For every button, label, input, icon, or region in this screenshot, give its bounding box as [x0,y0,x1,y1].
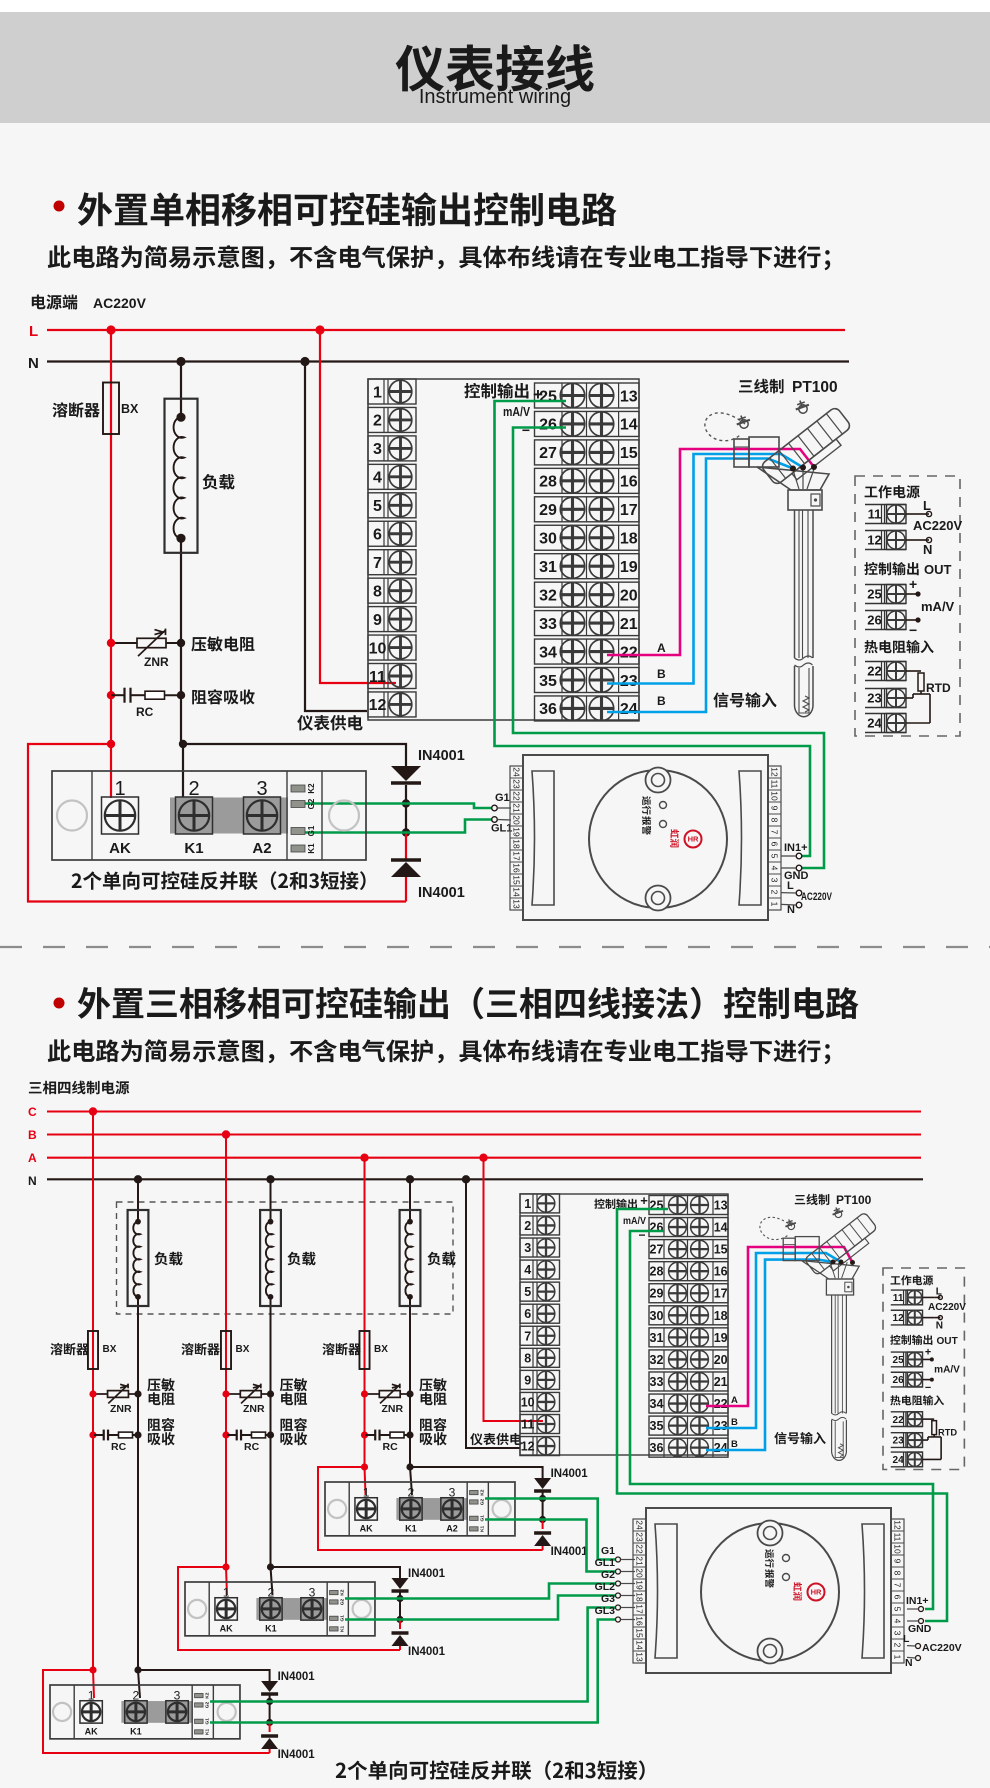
svg-text:9: 9 [373,612,382,629]
svg-text:IN4001: IN4001 [278,1671,316,1683]
svg-text:16: 16 [635,1616,645,1626]
svg-text:G2: G2 [480,1498,486,1505]
svg-text:+: + [909,576,917,592]
svg-text:3: 3 [309,1586,316,1600]
svg-text:29: 29 [539,502,557,519]
svg-text:32: 32 [539,587,557,604]
svg-text:mA/V: mA/V [623,1215,646,1227]
svg-text:14: 14 [714,1221,728,1235]
svg-text:4: 4 [770,866,780,871]
svg-text:14: 14 [635,1640,645,1650]
svg-text:HR: HR [811,1588,822,1597]
svg-text:7: 7 [524,1329,531,1343]
svg-text:13: 13 [635,1652,645,1662]
svg-text:B: B [731,1439,738,1450]
svg-text:18: 18 [714,1309,728,1323]
svg-text:22: 22 [620,644,638,661]
svg-text:OUT: OUT [936,1336,958,1347]
svg-text:L: L [936,1286,942,1297]
svg-text:3: 3 [256,778,267,800]
svg-text:A2: A2 [252,840,271,857]
svg-text:26: 26 [650,1221,664,1235]
svg-text:15: 15 [714,1243,728,1257]
svg-text:1: 1 [363,1486,370,1500]
svg-text:8: 8 [524,1351,531,1365]
svg-text:K2: K2 [340,1589,346,1595]
svg-text:12: 12 [893,1313,905,1324]
svg-text:11: 11 [369,669,386,686]
svg-text:4: 4 [373,470,382,487]
svg-text:33: 33 [539,616,557,633]
svg-text:26: 26 [893,1375,905,1386]
svg-text:2: 2 [373,413,382,430]
svg-text:BX: BX [103,1344,117,1355]
svg-text:36: 36 [650,1441,664,1455]
svg-text:K1: K1 [480,1525,486,1531]
svg-text:AC220V: AC220V [801,891,832,903]
svg-text:25: 25 [867,587,881,602]
svg-text:34: 34 [650,1397,664,1411]
svg-text:22: 22 [893,1415,905,1426]
svg-text:22: 22 [512,791,522,801]
svg-text:26: 26 [539,417,557,434]
svg-text:36: 36 [539,701,557,718]
svg-text:L: L [923,498,931,513]
svg-text:GL1: GL1 [491,823,512,835]
svg-text:27: 27 [539,445,557,462]
svg-text:3: 3 [893,1631,903,1636]
svg-text:22: 22 [867,664,881,679]
svg-text:12: 12 [867,533,881,548]
svg-text:−: − [909,622,917,638]
svg-text:22: 22 [635,1544,645,1554]
svg-text:mA/V: mA/V [934,1365,960,1376]
svg-text:1: 1 [524,1197,531,1211]
svg-text:24: 24 [620,701,638,718]
svg-text:ZNR: ZNR [382,1403,404,1415]
svg-text:3: 3 [449,1486,456,1500]
svg-text:K1: K1 [307,843,316,854]
svg-text:A2: A2 [446,1524,458,1534]
svg-text:24: 24 [867,716,882,731]
svg-text:19: 19 [620,559,638,576]
svg-text:17: 17 [512,851,522,861]
svg-text:23: 23 [714,1419,728,1433]
svg-text:2: 2 [408,1486,415,1500]
svg-text:L: L [787,880,794,892]
svg-text:G2: G2 [340,1598,346,1605]
svg-text:15: 15 [512,875,522,885]
svg-text:3: 3 [174,1689,181,1703]
svg-text:PT100: PT100 [792,379,838,396]
svg-text:K1: K1 [205,1728,211,1734]
svg-text:L: L [903,1633,910,1645]
svg-text:mA/V: mA/V [921,599,955,614]
svg-text:32: 32 [650,1353,664,1367]
svg-text:13: 13 [512,899,522,909]
svg-text:23: 23 [867,691,881,706]
svg-text:IN4001: IN4001 [551,1546,589,1558]
svg-text:K1: K1 [184,840,203,857]
svg-text:N: N [936,1320,943,1331]
svg-text:N: N [905,1657,913,1669]
svg-text:18: 18 [635,1592,645,1602]
svg-text:19: 19 [512,827,522,837]
svg-text:5: 5 [373,498,382,515]
svg-text:28: 28 [650,1265,664,1279]
svg-text:12: 12 [521,1440,535,1454]
svg-text:14: 14 [620,417,638,434]
svg-text:AK: AK [109,840,131,857]
svg-text:1: 1 [223,1586,230,1600]
svg-text:IN4001: IN4001 [278,1749,316,1761]
svg-text:35: 35 [650,1419,664,1433]
svg-text:B: B [731,1417,738,1428]
svg-text:23: 23 [893,1436,905,1447]
svg-text:25: 25 [650,1199,664,1213]
svg-text:G1: G1 [307,825,316,836]
svg-text:AK: AK [85,1727,99,1737]
svg-text:13: 13 [714,1199,728,1213]
svg-text:23: 23 [635,1532,645,1542]
svg-text:5: 5 [524,1285,531,1299]
svg-text:RC: RC [136,705,154,719]
svg-text:RTD: RTD [926,681,951,695]
svg-text:16: 16 [512,863,522,873]
svg-text:2: 2 [524,1219,531,1233]
svg-text:AC220V: AC220V [928,1302,966,1313]
svg-text:11: 11 [521,1418,534,1432]
svg-text:10: 10 [369,640,387,657]
svg-text:K1: K1 [130,1727,142,1737]
svg-text:G1: G1 [495,792,510,804]
svg-text:IN1+: IN1+ [784,842,808,854]
svg-text:18: 18 [620,531,638,548]
svg-text:K2: K2 [205,1692,211,1698]
svg-text:BX: BX [121,402,139,416]
svg-text:11: 11 [893,1533,903,1542]
svg-text:6: 6 [373,527,382,544]
svg-text:8: 8 [373,583,382,600]
svg-text:20: 20 [635,1568,645,1578]
svg-text:31: 31 [539,559,557,576]
svg-text:1: 1 [893,1655,903,1660]
svg-text:G1: G1 [340,1615,346,1622]
svg-text:AK: AK [360,1524,374,1534]
svg-text:HR: HR [688,835,699,844]
svg-text:6: 6 [524,1307,531,1321]
svg-text:16: 16 [714,1265,728,1279]
svg-text:11: 11 [770,780,780,789]
svg-text:30: 30 [650,1309,664,1323]
svg-text:+: + [640,1193,648,1208]
svg-text:5: 5 [770,854,780,859]
svg-text:A: A [731,1395,738,1406]
svg-text:12: 12 [893,1520,903,1530]
svg-text:N: N [28,1174,37,1188]
svg-text:OUT: OUT [924,562,952,577]
svg-text:B: B [657,667,666,681]
svg-text:2: 2 [188,778,199,800]
svg-text:18: 18 [512,839,522,849]
svg-text:IN4001: IN4001 [408,1568,446,1580]
svg-text:7: 7 [893,1583,903,1588]
svg-text:RTD: RTD [938,1427,957,1437]
svg-text:Instrument wiring: Instrument wiring [419,86,571,108]
svg-text:6: 6 [893,1595,903,1600]
svg-text:10: 10 [770,791,780,801]
svg-text:K2: K2 [307,783,316,794]
svg-text:9: 9 [770,806,780,811]
svg-text:G2: G2 [601,1569,615,1581]
svg-text:16: 16 [620,474,638,491]
svg-text:23: 23 [512,779,522,789]
svg-text:34: 34 [539,644,557,661]
svg-text:ZNR: ZNR [243,1403,265,1415]
svg-text:30: 30 [539,531,557,548]
svg-text:9: 9 [893,1559,903,1564]
svg-text:AK: AK [220,1624,234,1634]
svg-text:IN4001: IN4001 [418,748,465,764]
svg-text:20: 20 [512,815,522,825]
svg-text:IN4001: IN4001 [418,885,465,901]
svg-text:21: 21 [512,803,522,813]
svg-text:BX: BX [236,1344,250,1355]
svg-text:19: 19 [635,1580,645,1590]
svg-text:G2: G2 [307,798,316,809]
svg-text:N: N [28,355,39,372]
svg-text:AC220V: AC220V [913,518,962,533]
svg-text:7: 7 [373,555,382,572]
svg-text:10: 10 [893,1544,903,1554]
svg-text:5: 5 [893,1607,903,1612]
svg-text:17: 17 [714,1287,728,1301]
svg-text:13: 13 [620,388,638,405]
svg-text:GL1: GL1 [595,1557,616,1569]
svg-text:35: 35 [539,673,557,690]
svg-text:B: B [657,694,666,708]
svg-text:2: 2 [770,890,780,895]
svg-text:1: 1 [114,778,125,800]
svg-text:7: 7 [770,830,780,835]
svg-text:ZNR: ZNR [110,1403,132,1415]
svg-text:N: N [787,904,795,916]
svg-text:21: 21 [714,1375,728,1389]
svg-text:G1: G1 [480,1515,486,1522]
svg-text:6: 6 [770,842,780,847]
svg-text:RC: RC [111,1441,127,1453]
svg-text:−: − [522,422,530,438]
svg-text:8: 8 [893,1571,903,1576]
svg-text:G3: G3 [601,1593,615,1605]
svg-text:23: 23 [620,673,638,690]
svg-text:K1: K1 [405,1524,417,1534]
svg-text:17: 17 [635,1604,645,1614]
svg-text:G2: G2 [205,1701,211,1708]
svg-text:G1: G1 [601,1545,615,1557]
svg-text:27: 27 [650,1243,664,1257]
svg-text:17: 17 [620,502,638,519]
svg-text:31: 31 [650,1331,664,1345]
svg-text:RC: RC [383,1441,399,1453]
svg-text:3: 3 [373,441,382,458]
svg-text:BX: BX [374,1344,388,1355]
svg-text:GND: GND [908,1623,932,1635]
svg-text:14: 14 [512,887,522,897]
svg-text:24: 24 [635,1520,645,1530]
svg-text:25: 25 [893,1355,905,1366]
svg-text:15: 15 [620,445,638,462]
svg-text:2: 2 [268,1586,275,1600]
svg-text:K1: K1 [265,1624,277,1634]
svg-text:19: 19 [714,1331,728,1345]
svg-text:21: 21 [635,1556,645,1566]
svg-text:C: C [28,1105,37,1119]
svg-text:A: A [28,1151,37,1165]
svg-text:4: 4 [524,1263,531,1277]
svg-text:IN1+: IN1+ [906,1595,928,1607]
svg-text:G1: G1 [205,1718,211,1725]
svg-text:A: A [657,641,666,655]
svg-text:4: 4 [893,1619,903,1624]
svg-text:3: 3 [770,878,780,883]
svg-text:N: N [923,542,932,557]
svg-text:mA/V: mA/V [503,404,530,419]
svg-text:GL3: GL3 [595,1605,616,1617]
svg-text:21: 21 [620,616,638,633]
svg-text:22: 22 [714,1397,728,1411]
svg-text:33: 33 [650,1375,664,1389]
svg-text:20: 20 [620,587,638,604]
svg-text:L: L [29,323,38,340]
svg-text:IN4001: IN4001 [551,1468,589,1480]
svg-text:2: 2 [133,1689,140,1703]
svg-text:+: + [925,1347,931,1359]
svg-text:2: 2 [893,1643,903,1648]
svg-text:26: 26 [867,613,881,628]
svg-text:AC220V: AC220V [93,295,147,311]
svg-text:12: 12 [369,697,387,714]
svg-text:1: 1 [770,902,780,907]
svg-text:9: 9 [524,1373,531,1387]
svg-text:GL2: GL2 [595,1581,616,1593]
svg-text:12: 12 [770,767,780,777]
svg-text:IN4001: IN4001 [408,1646,446,1658]
svg-text:K2: K2 [480,1489,486,1495]
svg-text:3: 3 [524,1241,531,1255]
svg-text:RC: RC [244,1441,260,1453]
svg-text:−: − [925,1382,931,1394]
svg-text:24: 24 [512,767,522,777]
svg-text:11: 11 [868,507,882,522]
svg-text:15: 15 [635,1628,645,1638]
svg-text:B: B [28,1128,37,1142]
svg-text:10: 10 [521,1395,535,1409]
svg-text:AC220V: AC220V [922,1642,962,1654]
svg-text:20: 20 [714,1353,728,1367]
svg-text:1: 1 [373,384,382,401]
svg-text:PT100: PT100 [836,1193,872,1207]
svg-text:1: 1 [88,1689,95,1703]
svg-text:11: 11 [893,1293,904,1304]
svg-text:8: 8 [770,818,780,823]
svg-text:28: 28 [539,474,557,491]
svg-text:24: 24 [714,1441,728,1455]
svg-text:29: 29 [650,1287,664,1301]
svg-text:K1: K1 [340,1625,346,1631]
svg-text:24: 24 [893,1455,905,1466]
svg-text:ZNR: ZNR [144,655,169,669]
